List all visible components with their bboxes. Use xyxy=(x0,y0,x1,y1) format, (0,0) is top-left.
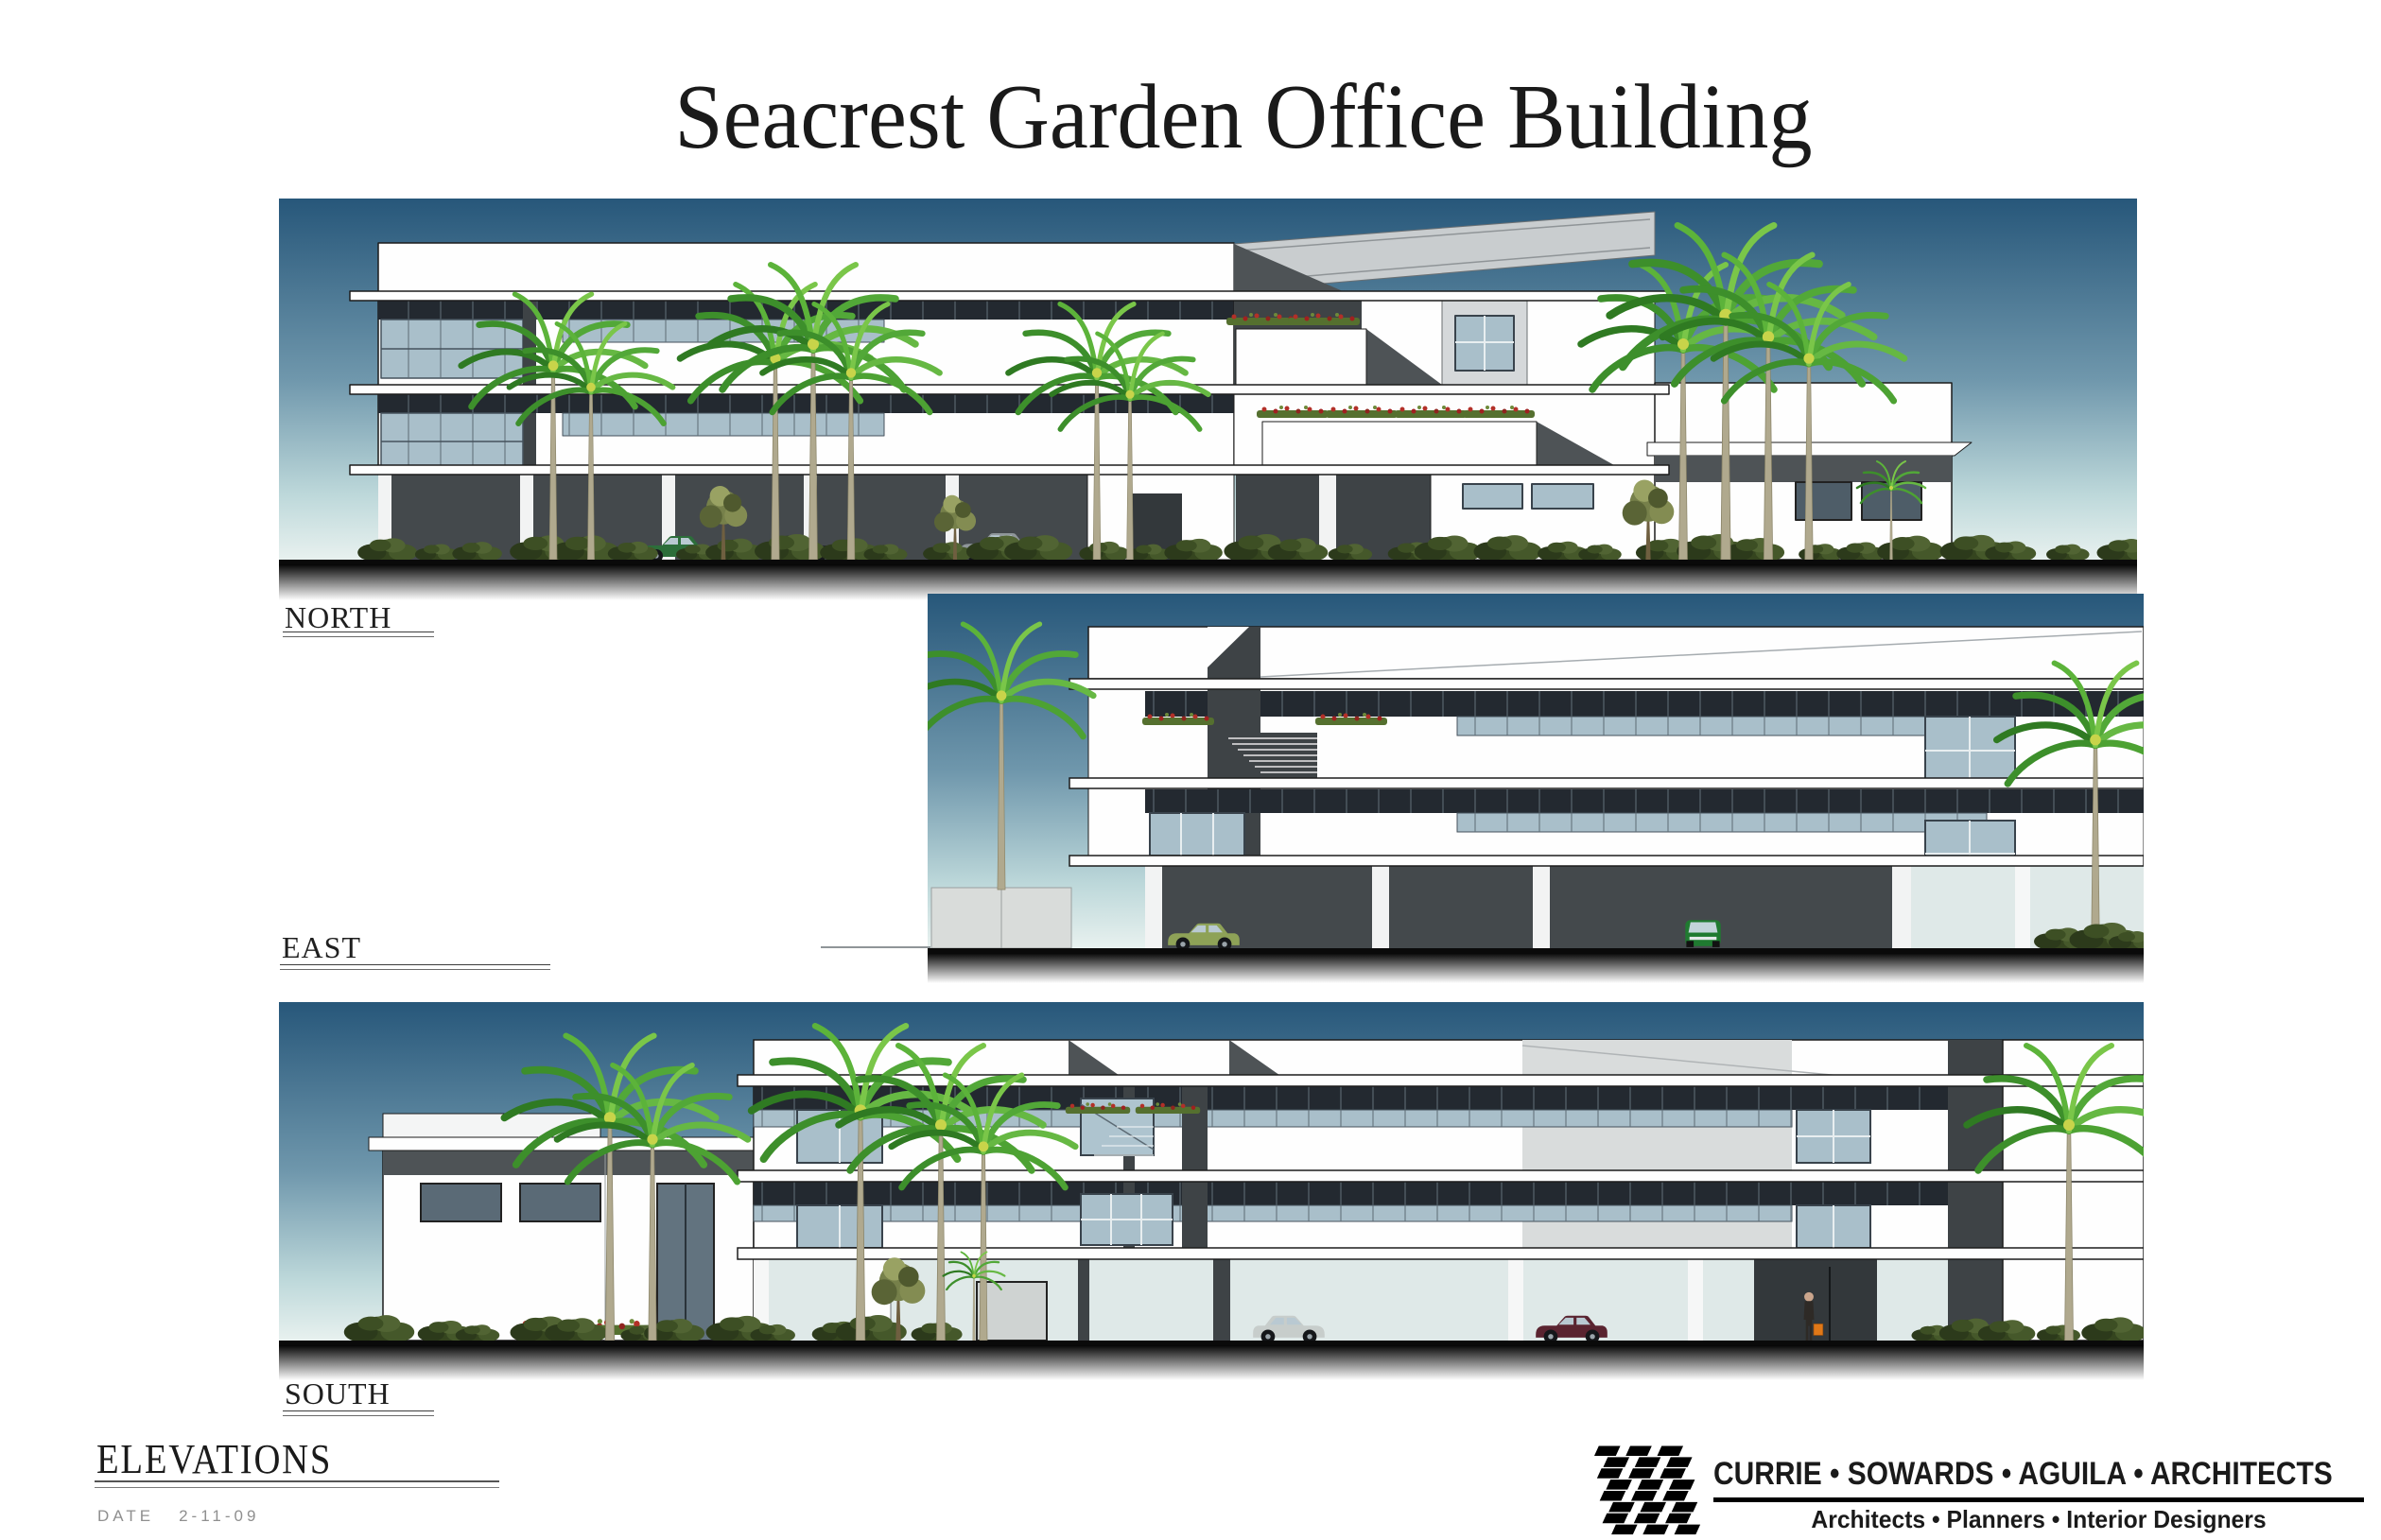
east-ground-line xyxy=(928,948,2144,953)
south-label-underline xyxy=(283,1410,434,1416)
firm-name: CURRIE • SOWARDS • AGUILA • ARCHITECTS xyxy=(1713,1456,2301,1493)
east-ground-extension-line xyxy=(821,946,930,948)
page-title-text: Seacrest Garden Office Building xyxy=(674,64,1812,170)
north-label: NORTH xyxy=(285,600,391,635)
firm-rule xyxy=(1713,1497,2364,1502)
firm-block: CURRIE • SOWARDS • AGUILA • ARCHITECTS A… xyxy=(1713,1456,2381,1534)
east-label-underline xyxy=(280,964,550,970)
sheet-title-underline xyxy=(95,1480,499,1488)
north-ground-line xyxy=(279,560,2137,564)
date-label: DATE xyxy=(97,1507,154,1525)
south-label: SOUTH xyxy=(285,1376,391,1411)
south-ground-line xyxy=(279,1341,2144,1345)
north-label-underline xyxy=(283,632,434,637)
page-title: Seacrest Garden Office Building xyxy=(53,64,2381,170)
east-ground-shadow xyxy=(928,953,2144,983)
south-elevation-drawing xyxy=(279,1002,2144,1380)
south-ground-shadow xyxy=(279,1345,2144,1380)
sheet-title-text: ELEVATIONS xyxy=(96,1435,332,1483)
firm-tagline: Architects • Planners • Interior Designe… xyxy=(1729,1505,2348,1534)
sheet-title-elevations: ELEVATIONS xyxy=(96,1435,364,1483)
south-low-wing xyxy=(369,1114,780,1341)
date-line: DATE2-11-09 xyxy=(97,1507,259,1526)
north-elevation-drawing xyxy=(279,199,2137,600)
east-label: EAST xyxy=(282,930,361,965)
date-value: 2-11-09 xyxy=(179,1507,259,1525)
drawing-sheet: Seacrest Garden Office Building xyxy=(0,0,2381,1540)
east-stair xyxy=(1228,733,1317,778)
east-elevation-drawing xyxy=(928,594,2144,983)
east-building xyxy=(1069,627,2144,948)
diagonal-checker-logo-icon xyxy=(1594,1443,1702,1539)
